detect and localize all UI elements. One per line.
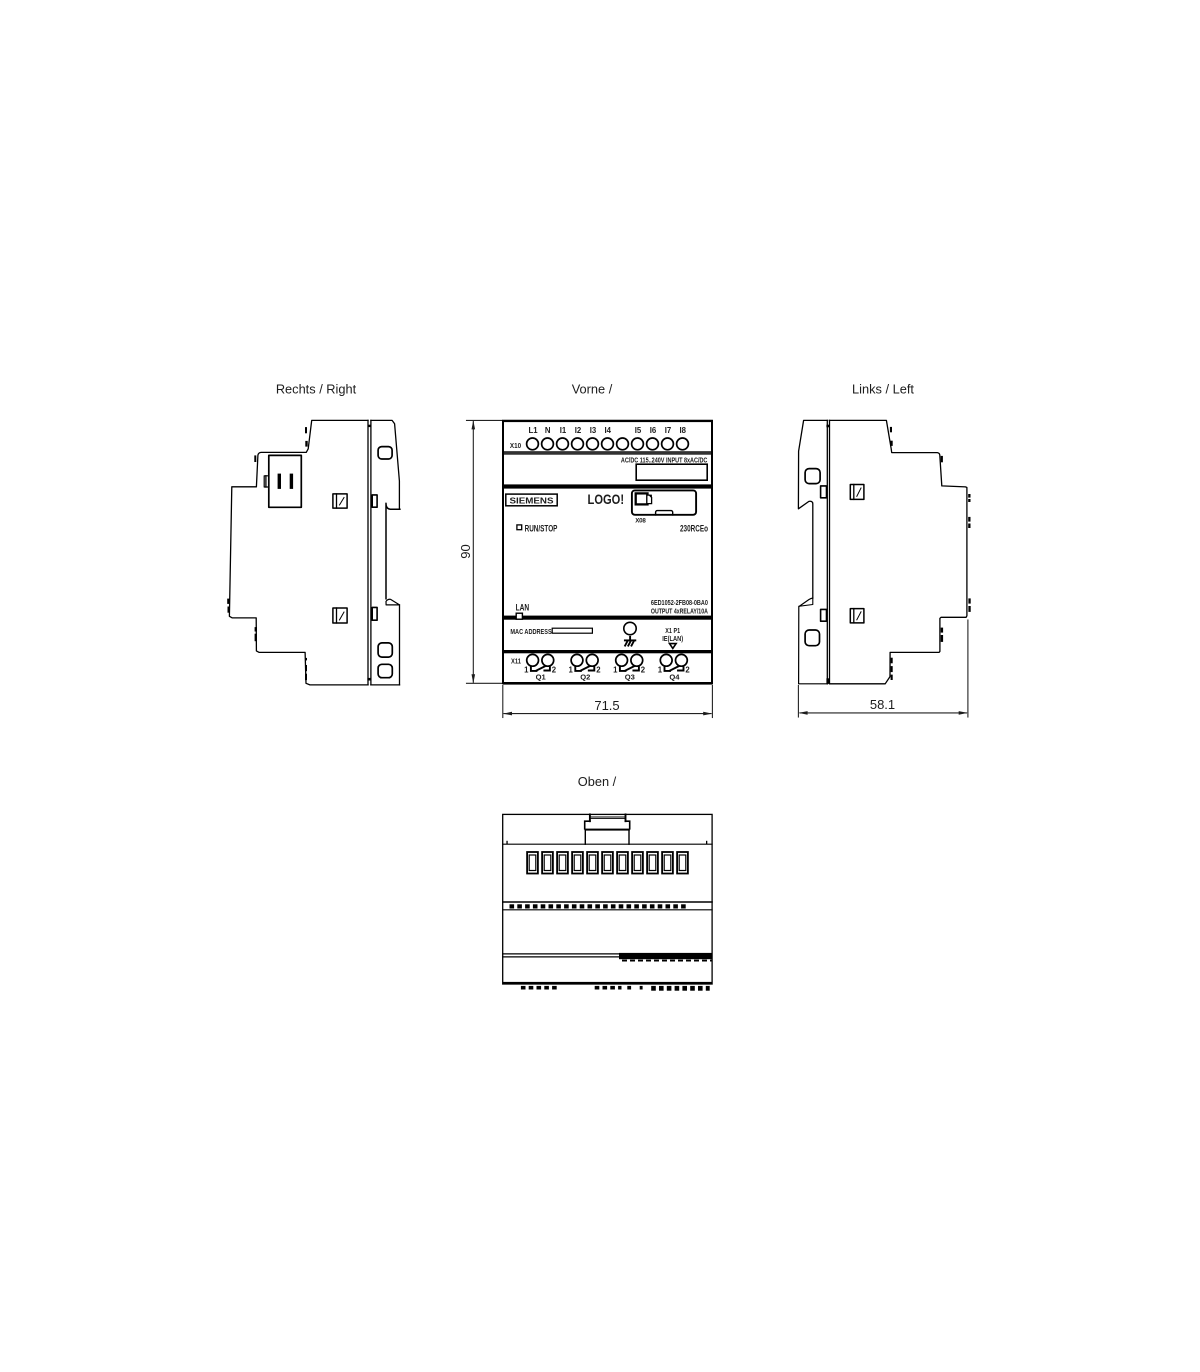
svg-text:1: 1 bbox=[524, 665, 529, 674]
svg-text:I8: I8 bbox=[679, 426, 686, 435]
svg-text:OUTPUT 4xRELAY/10A: OUTPUT 4xRELAY/10A bbox=[651, 609, 708, 616]
svg-text:2: 2 bbox=[552, 665, 557, 674]
svg-text:Oben /: Oben / bbox=[578, 774, 617, 789]
svg-text:2: 2 bbox=[641, 665, 646, 674]
svg-text:N: N bbox=[545, 426, 551, 435]
svg-text:LAN: LAN bbox=[516, 602, 530, 612]
svg-text:2: 2 bbox=[685, 665, 690, 674]
svg-text:I4: I4 bbox=[604, 426, 611, 435]
svg-text:2: 2 bbox=[596, 665, 601, 674]
svg-text:I6: I6 bbox=[650, 426, 657, 435]
svg-text:I7: I7 bbox=[665, 426, 672, 435]
svg-text:IE(LAN): IE(LAN) bbox=[662, 636, 683, 643]
svg-text:Q4: Q4 bbox=[669, 673, 680, 682]
svg-text:1: 1 bbox=[613, 665, 618, 674]
svg-text:AC/DC 115..240V INPUT 8xAC/DC: AC/DC 115..240V INPUT 8xAC/DC bbox=[621, 458, 708, 465]
svg-text:L1: L1 bbox=[528, 426, 538, 435]
svg-text:MAC ADDRESS: MAC ADDRESS bbox=[510, 627, 551, 636]
svg-text:6ED1052-2FB08-0BA0: 6ED1052-2FB08-0BA0 bbox=[651, 600, 708, 607]
svg-text:Q1: Q1 bbox=[536, 673, 547, 682]
svg-text:Q3: Q3 bbox=[625, 673, 635, 682]
svg-text:Q2: Q2 bbox=[580, 673, 590, 682]
svg-text:X10: X10 bbox=[510, 441, 521, 450]
svg-text:I1: I1 bbox=[560, 426, 567, 435]
svg-text:I5: I5 bbox=[635, 426, 642, 435]
svg-text:Links / Left: Links / Left bbox=[852, 382, 914, 397]
svg-text:LOGO!: LOGO! bbox=[588, 492, 625, 507]
svg-text:X11: X11 bbox=[511, 657, 521, 666]
svg-text:Rechts / Right: Rechts / Right bbox=[276, 382, 357, 397]
svg-text:SIEMENS: SIEMENS bbox=[510, 496, 554, 505]
svg-text:X08: X08 bbox=[635, 517, 646, 524]
svg-text:1: 1 bbox=[569, 665, 574, 674]
svg-text:X1 P1: X1 P1 bbox=[665, 628, 680, 635]
svg-text:I2: I2 bbox=[575, 426, 582, 435]
svg-text:1: 1 bbox=[658, 665, 663, 674]
svg-text:RUN/STOP: RUN/STOP bbox=[525, 523, 558, 534]
svg-text:230RCEo: 230RCEo bbox=[680, 523, 708, 534]
svg-text:58.1: 58.1 bbox=[870, 697, 895, 712]
svg-text:71.5: 71.5 bbox=[594, 698, 619, 713]
svg-text:Vorne /: Vorne / bbox=[572, 382, 613, 397]
svg-text:I3: I3 bbox=[590, 426, 597, 435]
svg-text:90: 90 bbox=[458, 544, 473, 558]
